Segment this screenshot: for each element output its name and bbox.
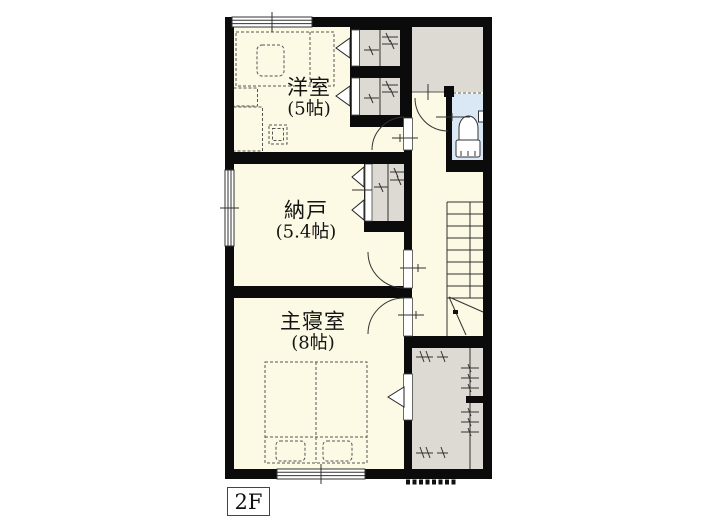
walk-in-closet-area [412,348,483,469]
room-name: 洋室 [287,76,331,100]
floor-label-badge: 2F [227,487,270,516]
floor-label: 2F [235,490,263,514]
room-size: (8帖) [280,334,346,355]
room-name: 納戸 [276,199,337,223]
storage-room-label: 納戸 (5.4帖) [276,199,337,244]
floorplan-drawing [0,0,709,531]
room-size: (5.4帖) [276,223,337,244]
western-room-label: 洋室 (5帖) [287,76,331,121]
bottom-hatch-strip [406,480,456,485]
master-bedroom-label: 主寝室 (8帖) [280,310,346,355]
floorplan-page: 洋室 (5帖) 納戸 (5.4帖) 主寝室 (8帖) 2F [0,0,709,531]
stair-start-marker [453,310,458,314]
room-size: (5帖) [287,100,331,121]
room-name: 主寝室 [280,310,346,334]
upper-void-area [412,26,483,92]
